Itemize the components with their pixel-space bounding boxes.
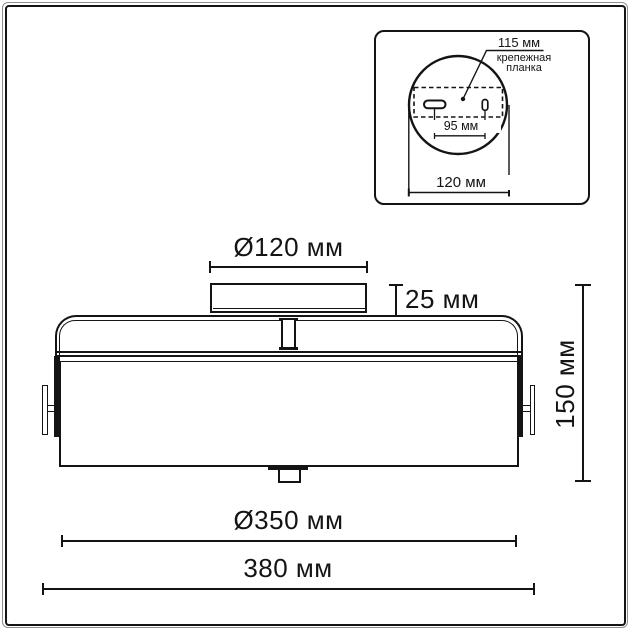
nub: [278, 470, 301, 484]
stem-bottom-flange: [279, 347, 299, 350]
canopy-lip-line: [213, 308, 365, 309]
dim-line-total-height: [582, 285, 584, 482]
dim-line-total-width: [43, 588, 534, 590]
dimension-drawing: 115 мм крепежная планка 95 мм 120 мм Ø12…: [0, 0, 630, 630]
clip-arm-left: [48, 405, 55, 412]
inset-dim-95-label: 95 мм: [421, 120, 501, 133]
dim-tick: [209, 261, 211, 273]
clip-plate-right: [530, 385, 536, 435]
rim-band-line-upper: [55, 351, 523, 353]
canopy-diameter-label: Ø120 мм: [210, 233, 367, 261]
mounting-detail-inset: 115 мм крепежная планка 95 мм 120 мм: [374, 30, 590, 205]
dim-tick: [366, 261, 368, 273]
stem-top-flange: [279, 318, 299, 321]
total-height-label: 150 мм: [551, 284, 579, 484]
dim-line-shade-diameter: [62, 540, 516, 542]
frame-bar-right: [517, 356, 523, 437]
shade: [59, 362, 519, 467]
rim-band-line-lower: [55, 355, 523, 357]
shade-diameter-label: Ø350 мм: [62, 506, 515, 534]
mounting-plate-dashed-outline: [414, 87, 503, 117]
dim-line-canopy-height: [395, 284, 397, 316]
clip-arm-right: [523, 405, 530, 412]
total-width-label: 380 мм: [43, 554, 533, 582]
mounting-plate-label-line2: планка: [474, 63, 574, 73]
dim-tick: [42, 583, 44, 595]
inset-offset-label: 115 мм: [477, 36, 561, 50]
frame-bar-left: [54, 356, 60, 437]
stem: [281, 318, 296, 349]
inset-dim-120-label: 120 мм: [411, 175, 511, 190]
dim-tick: [515, 535, 517, 547]
dim-tick: [61, 535, 63, 547]
dim-line-canopy-diameter: [210, 266, 367, 268]
canopy-height-label: 25 мм: [405, 285, 479, 313]
dim-tick: [533, 583, 535, 595]
